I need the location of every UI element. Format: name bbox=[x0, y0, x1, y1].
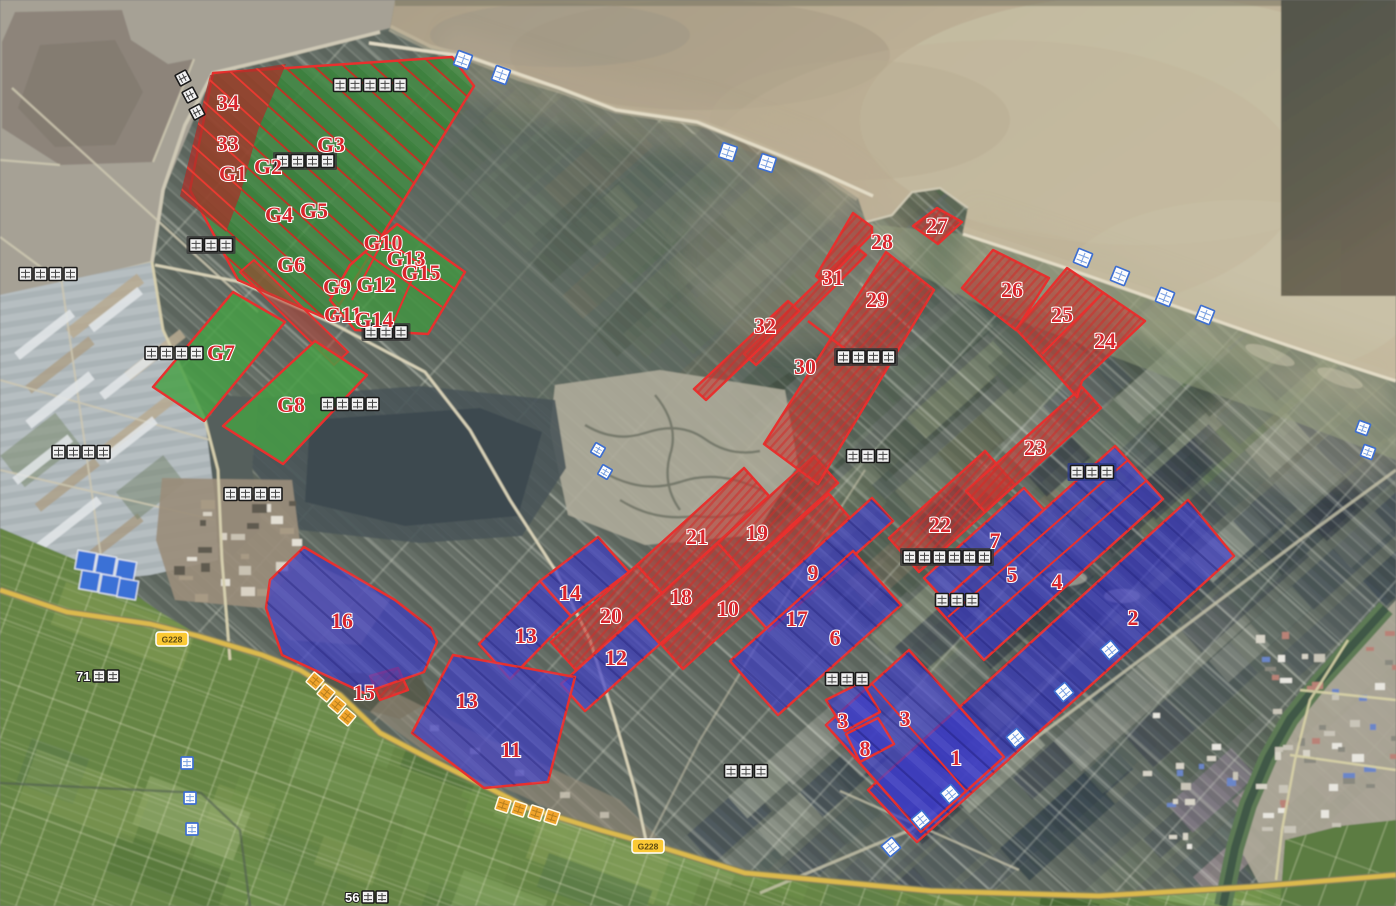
svg-text:23: 23 bbox=[1024, 435, 1046, 460]
svg-text:11: 11 bbox=[501, 737, 522, 762]
svg-text:71: 71 bbox=[76, 669, 90, 684]
svg-text:2: 2 bbox=[1128, 605, 1139, 630]
svg-text:G5: G5 bbox=[300, 198, 328, 223]
svg-text:10: 10 bbox=[717, 596, 739, 621]
svg-text:12: 12 bbox=[605, 645, 627, 670]
svg-text:15: 15 bbox=[353, 680, 375, 705]
svg-text:19: 19 bbox=[746, 520, 768, 545]
svg-text:G9: G9 bbox=[323, 274, 351, 299]
svg-text:31: 31 bbox=[822, 265, 844, 290]
svg-text:G1: G1 bbox=[219, 161, 247, 186]
svg-text:56: 56 bbox=[345, 890, 359, 905]
svg-text:G3: G3 bbox=[317, 132, 345, 157]
svg-text:1: 1 bbox=[951, 745, 962, 770]
svg-text:6: 6 bbox=[830, 625, 841, 650]
svg-text:3: 3 bbox=[900, 706, 911, 731]
svg-text:G8: G8 bbox=[277, 392, 305, 417]
svg-text:14: 14 bbox=[559, 580, 581, 605]
svg-text:G15: G15 bbox=[401, 260, 440, 285]
svg-text:25: 25 bbox=[1051, 302, 1073, 327]
svg-text:G7: G7 bbox=[207, 340, 235, 365]
svg-text:4: 4 bbox=[1052, 569, 1063, 594]
svg-text:G228: G228 bbox=[162, 635, 183, 645]
svg-text:G2: G2 bbox=[254, 154, 282, 179]
svg-text:G6: G6 bbox=[277, 252, 305, 277]
svg-text:16: 16 bbox=[331, 608, 353, 633]
svg-text:30: 30 bbox=[794, 354, 816, 379]
svg-text:29: 29 bbox=[866, 287, 888, 312]
svg-text:G4: G4 bbox=[265, 202, 293, 227]
svg-text:28: 28 bbox=[871, 229, 893, 254]
svg-text:18: 18 bbox=[670, 584, 692, 609]
svg-text:33: 33 bbox=[217, 131, 239, 156]
svg-text:8: 8 bbox=[860, 736, 871, 761]
svg-text:G14: G14 bbox=[354, 307, 393, 332]
svg-text:26: 26 bbox=[1001, 277, 1023, 302]
svg-text:G12: G12 bbox=[356, 272, 395, 297]
svg-text:3: 3 bbox=[838, 708, 849, 733]
svg-text:22: 22 bbox=[929, 512, 951, 537]
svg-text:9: 9 bbox=[808, 560, 819, 585]
svg-text:34: 34 bbox=[217, 90, 239, 115]
svg-text:17: 17 bbox=[786, 606, 808, 631]
svg-text:5: 5 bbox=[1007, 562, 1018, 587]
svg-text:13: 13 bbox=[456, 688, 478, 713]
svg-text:G228: G228 bbox=[638, 842, 659, 852]
svg-text:20: 20 bbox=[600, 603, 622, 628]
svg-text:24: 24 bbox=[1094, 328, 1116, 353]
svg-text:32: 32 bbox=[754, 313, 776, 338]
svg-text:21: 21 bbox=[686, 524, 708, 549]
svg-text:27: 27 bbox=[926, 213, 948, 238]
svg-text:7: 7 bbox=[990, 528, 1001, 553]
svg-text:13: 13 bbox=[515, 623, 537, 648]
